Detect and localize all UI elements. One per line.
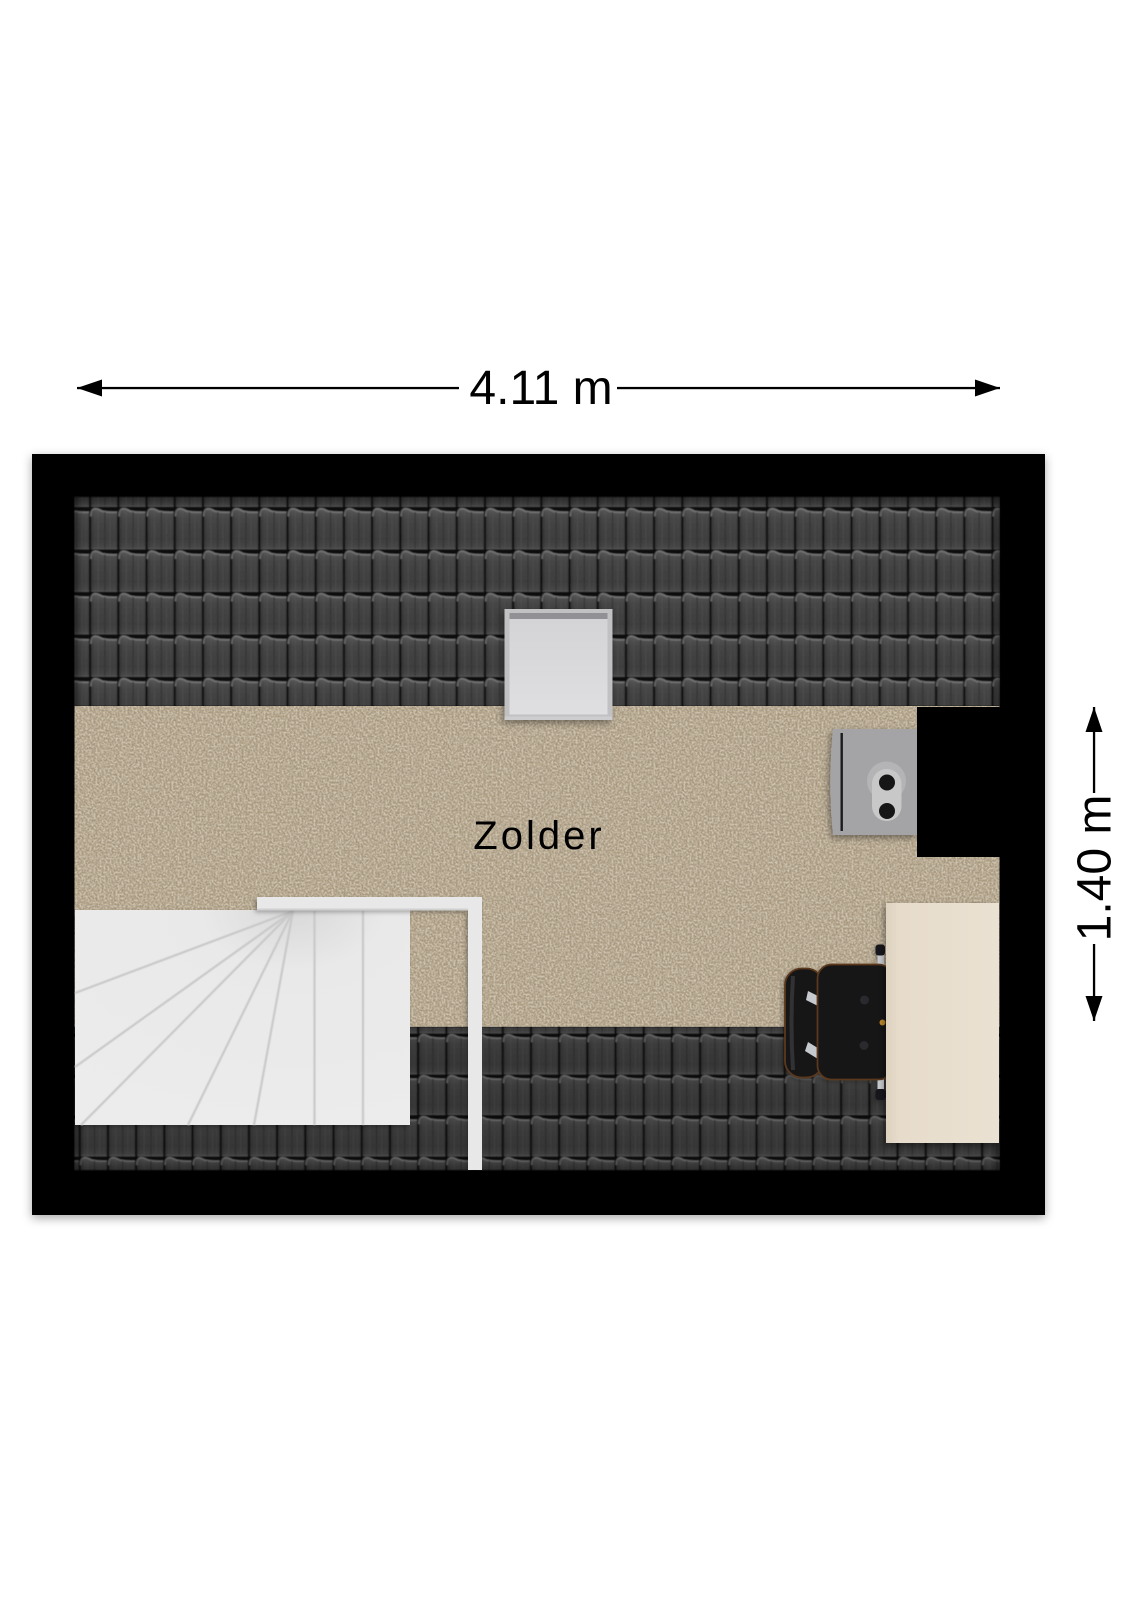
svg-text:1.40 m: 1.40 m xyxy=(1069,795,1122,942)
svg-text:4.11 m: 4.11 m xyxy=(469,362,612,415)
svg-text:Zolder: Zolder xyxy=(473,814,604,858)
